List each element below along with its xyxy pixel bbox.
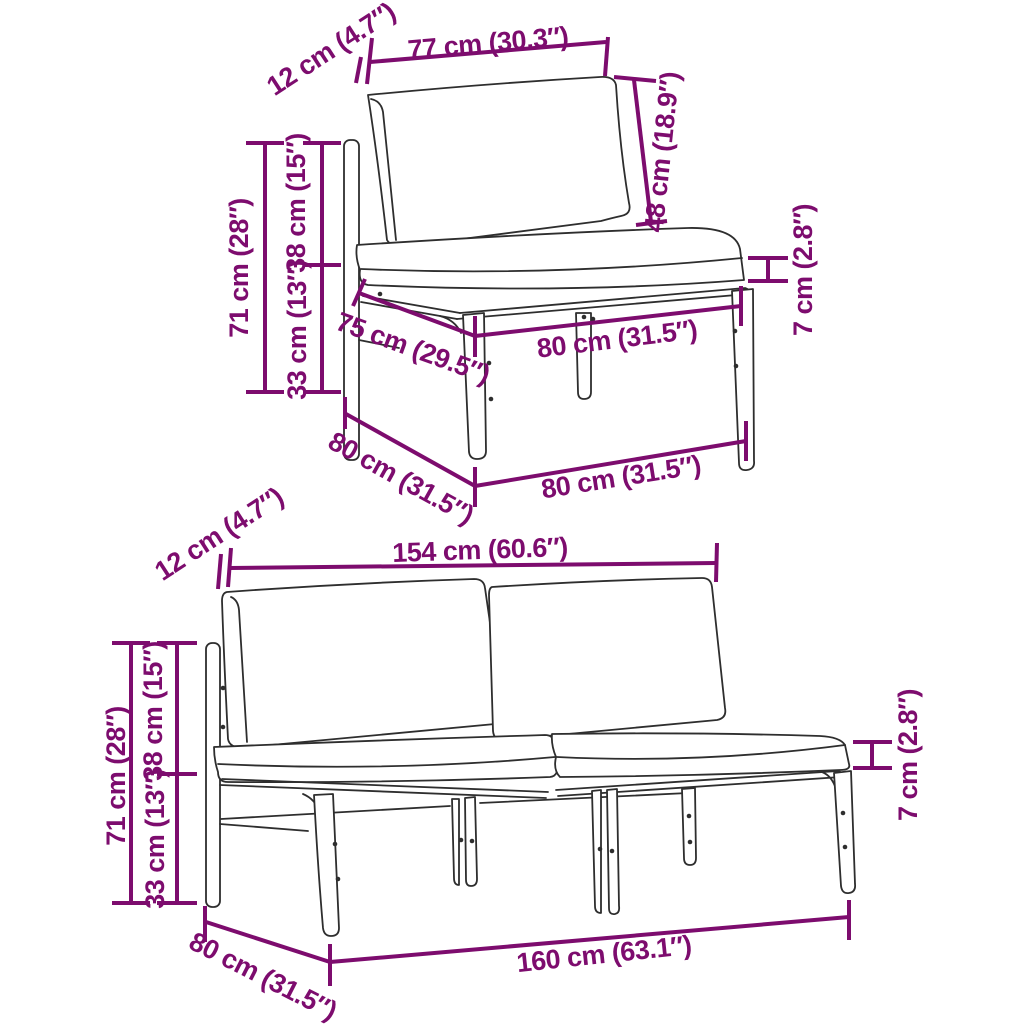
- front-right-leg: [834, 771, 855, 893]
- dim-label-back-width: 154 cm (60.6″): [392, 532, 568, 568]
- dim-label-seat-height: 33 cm (13″): [140, 769, 170, 909]
- dim-overall-depth: 80 cm (31.5″): [184, 906, 341, 1024]
- dim-cushion-thickness: 7 cm (2.8″): [748, 204, 818, 336]
- seat-cushion-right: [552, 733, 849, 777]
- dim-label-seat-height: 33 cm (13″): [282, 260, 312, 400]
- two-seater-art: [206, 578, 855, 936]
- back-right-leg: [682, 788, 696, 865]
- dim-backrest-and-seat-height: 38 cm (15″) 33 cm (13″): [281, 133, 341, 400]
- back-cushion-right: [489, 578, 725, 740]
- dim-back-width: 77 cm (30.3″): [367, 21, 608, 84]
- dim-label-back-width: 77 cm (30.3″): [406, 21, 569, 65]
- dim-frame-offset: 12 cm (4.7″): [149, 482, 288, 589]
- dim-label-frame-offset: 12 cm (4.7″): [261, 0, 400, 101]
- front-middle-leg-pair: [592, 789, 619, 914]
- dim-overall-width: 160 cm (63.1″): [330, 900, 849, 978]
- dim-label-backrest-height: 38 cm (15″): [138, 641, 168, 781]
- diagram-canvas: 12 cm (4.7″) 77 cm (30.3″) 48 cm (18.9″)…: [0, 0, 1024, 1024]
- dim-overall-width: 80 cm (31.5″): [475, 421, 746, 504]
- single-module-art: [344, 77, 754, 470]
- dim-overall-height: 71 cm (28″): [224, 143, 284, 392]
- front-rail: [457, 288, 749, 319]
- dim-label-overall-height: 71 cm (28″): [224, 198, 254, 338]
- dim-label-cushion-thickness: 7 cm (2.8″): [788, 204, 818, 336]
- dim-cushion-thickness: 7 cm (2.8″): [853, 689, 923, 821]
- product-dimension-diagram: 12 cm (4.7″) 77 cm (30.3″) 48 cm (18.9″)…: [0, 0, 1024, 1024]
- dim-overall-depth: 80 cm (31.5″): [323, 397, 478, 530]
- front-left-leg: [314, 794, 339, 936]
- left-stretcher: [220, 824, 308, 831]
- dim-label-overall-height: 71 cm (28″): [101, 706, 131, 846]
- dim-label-back-height: 48 cm (18.9″): [639, 70, 686, 233]
- dim-label-overall-width: 80 cm (31.5″): [539, 450, 703, 505]
- dim-label-cushion-thickness: 7 cm (2.8″): [893, 689, 923, 821]
- dim-label-backrest-height: 38 cm (15″): [281, 133, 311, 273]
- dim-frame-offset: 12 cm (4.7″): [261, 0, 400, 101]
- back-cushion-left: [222, 579, 503, 748]
- dim-label-overall-depth: 80 cm (31.5″): [323, 426, 478, 530]
- back-cushion: [368, 77, 630, 246]
- dim-backrest-and-seat-height: 38 cm (15″) 33 cm (13″): [138, 641, 197, 909]
